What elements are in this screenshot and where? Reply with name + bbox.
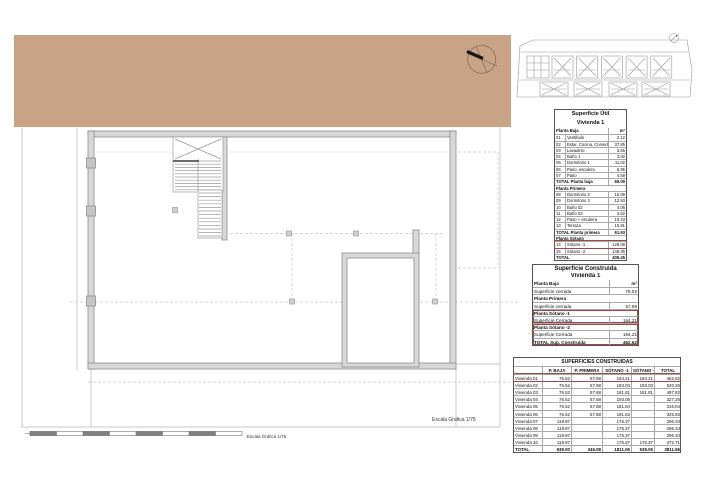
value-cell: 193.03 <box>602 382 631 388</box>
table-row: Planta Bajam² <box>555 128 626 134</box>
value-cell: 61.93 <box>608 230 626 235</box>
value-cell: 3.65 <box>608 148 626 153</box>
value-cell <box>571 425 602 431</box>
table-row: Vivienda 0276.5257.68193.03193.03520.26 <box>514 381 680 388</box>
value-cell: Vivienda 10 <box>514 439 542 445</box>
table-row: 03Lavadero3.65 <box>555 147 626 153</box>
value-cell: 191.63 <box>602 411 631 417</box>
construida-table-rows: Planta Bajam²Superficie cerrada76.52Plan… <box>533 280 638 345</box>
row-label-cell: Planta Primera <box>555 186 626 191</box>
room-code-cell: 14 <box>555 242 566 247</box>
table-row: TOTAL405.45 <box>555 254 626 260</box>
row-label-cell: Sótano -2 <box>566 249 608 254</box>
table-row: 01Vestíbulo2.12 <box>555 134 626 140</box>
value-cell: 327.26 <box>654 396 680 402</box>
construida-table-subtitle: Vivienda 1 <box>533 273 638 281</box>
table-row: 10Baño 024.06 <box>555 204 626 210</box>
row-label-cell: Paso, escalera <box>566 167 608 172</box>
value-cell: 119.97 <box>542 425 571 431</box>
column-header-cell: TOTAL <box>654 367 680 374</box>
column-header-cell: P. PRIMERA <box>571 367 602 374</box>
room-code-cell: 10 <box>555 205 566 210</box>
table-header-row: P. BAJAP. PRIMERASÓTANO -1SÓTANO -2TOTAL <box>514 367 680 374</box>
row-label-cell: Superficie Cerrada <box>533 317 609 323</box>
value-cell: 296.34 <box>654 425 680 431</box>
value-cell: 176.37 <box>602 439 631 445</box>
value-cell: 4.06 <box>608 205 626 210</box>
total-cell: TOTAL <box>514 446 542 452</box>
value-cell: 57.68 <box>571 411 602 417</box>
construida-table-title: Superficie Construida <box>533 265 638 273</box>
value-cell: 5.95 <box>608 167 626 172</box>
column-header-cell: P. BAJA <box>542 367 571 374</box>
value-cell <box>631 411 654 417</box>
row-label-cell: Planta Sótano -1 <box>533 310 638 316</box>
row-label-cell: Planta Sótano -2 <box>533 324 638 330</box>
superficie-construida-table: Superficie Construida Vivienda 1 Planta … <box>532 264 639 346</box>
value-cell: 4.58 <box>608 173 626 178</box>
row-label-cell: Planta Baja <box>533 280 609 287</box>
row-label-cell: Superficie cerrada <box>533 288 609 294</box>
room-code-cell: 03 <box>555 148 566 153</box>
value-cell: 146.35 <box>608 249 626 254</box>
value-cell: 76.52 <box>609 288 638 294</box>
value-cell: 497.82 <box>654 389 680 395</box>
value-cell: 164.21 <box>602 375 631 381</box>
column-header-cell <box>514 367 542 374</box>
column-header-cell: SÓTANO -2 <box>631 367 654 374</box>
table-row: Planta Sótano -2 <box>533 323 638 330</box>
table-row: Vivienda 0676.5257.68191.63325.83 <box>514 410 680 417</box>
value-cell: 181.81 <box>631 389 654 395</box>
row-label-cell: Patio <box>566 173 608 178</box>
value-cell: 119.97 <box>542 432 571 438</box>
value-cell: m² <box>608 128 626 134</box>
room-code-cell: 04 <box>555 154 566 159</box>
value-cell: 405.45 <box>608 255 626 260</box>
value-cell: 10.43 <box>608 217 626 222</box>
row-label-cell: Estar, Cocina, Comedor <box>566 142 608 147</box>
total-cell: 539.05 <box>631 446 654 452</box>
value-cell <box>631 403 654 409</box>
table-row: TOTAL Sup. Construida462.62 <box>533 338 638 345</box>
value-cell: 325.83 <box>654 411 680 417</box>
table-row: Planta Primera <box>533 294 638 301</box>
site-key-plan <box>517 34 692 98</box>
value-cell: 3.62 <box>608 211 626 216</box>
value-cell: 462.62 <box>609 339 638 345</box>
table-row: Vivienda 0476.5257.68193.06327.26 <box>514 395 680 402</box>
table-row: Vivienda 07119.97176.37296.34 <box>514 417 680 424</box>
value-cell: Vivienda 09 <box>514 432 542 438</box>
row-label-cell: TOTAL Sup. Construida <box>533 339 609 345</box>
value-cell: 119.97 <box>542 439 571 445</box>
column-header-cell: SÓTANO -1 <box>602 367 631 374</box>
value-cell: 11.02 <box>608 160 626 165</box>
value-cell: 57.68 <box>571 389 602 395</box>
value-cell <box>631 432 654 438</box>
room-code-cell: 06 <box>555 167 566 172</box>
row-label-cell: Terraza <box>566 223 608 228</box>
value-cell: 164.21 <box>631 375 654 381</box>
value-cell: 57.68 <box>571 403 602 409</box>
table-row: 08Dormitorio 215.08 <box>555 191 626 197</box>
value-cell: Vivienda 03 <box>514 389 542 395</box>
table-row: TOTAL Planta baja69.09 <box>555 178 626 184</box>
value-cell: Vivienda 01 <box>514 375 542 381</box>
table-row: Planta Primera <box>555 185 626 191</box>
table-row: Vivienda 10119.97176.37176.37472.71 <box>514 438 680 445</box>
value-cell: Vivienda 06 <box>514 411 542 417</box>
room-code-cell: 05 <box>555 160 566 165</box>
superficies-resumen-table: SUPERFICIES CONSTRUIDAS P. BAJAP. PRIMER… <box>513 357 681 453</box>
row-label-cell: Sótano -1 <box>566 242 608 247</box>
value-cell: 181.84 <box>602 403 631 409</box>
value-cell: 296.34 <box>654 418 680 424</box>
util-table-rows: Planta Bajam²01Vestíbulo2.1202Estar, Coc… <box>555 128 626 260</box>
value-cell: 76.52 <box>542 403 571 409</box>
value-cell: 57.68 <box>571 382 602 388</box>
value-cell: 520.26 <box>654 382 680 388</box>
table-row: Superficie Cerrada164.21 <box>533 330 638 337</box>
table-row: 13Terraza15.81 <box>555 222 626 228</box>
value-cell <box>571 439 602 445</box>
row-label-cell: Paso + escalera <box>566 217 608 222</box>
value-cell: 12.93 <box>608 198 626 203</box>
value-cell: 164.21 <box>609 331 638 337</box>
value-cell: m² <box>609 280 638 287</box>
mini-compass-icon <box>670 34 679 43</box>
table-row: Superficie cerrada57.68 <box>533 302 638 309</box>
row-label-cell: Dormitorio 2 <box>566 192 608 197</box>
value-cell: 2.12 <box>608 135 626 140</box>
room-code-cell: 12 <box>555 217 566 222</box>
table-row: 14Sótano -1128.06 <box>555 241 626 247</box>
value-cell: 15.81 <box>608 223 626 228</box>
superficie-util-table: Superficie Útil Vivienda 1 Planta Bajam²… <box>554 109 627 261</box>
value-cell <box>571 418 602 424</box>
table-row: Planta Bajam² <box>533 280 638 287</box>
row-label-cell: Planta Sótano <box>555 236 626 241</box>
total-cell: 1811.06 <box>602 446 631 452</box>
row-label-cell: Vestíbulo <box>566 135 608 140</box>
value-cell: 176.37 <box>602 432 631 438</box>
value-cell: 316.04 <box>654 403 680 409</box>
room-code-cell: 01 <box>555 135 566 140</box>
row-label-cell: TOTAL Planta primera <box>555 230 608 235</box>
table-row: Planta Sótano <box>555 235 626 241</box>
table-row: Vivienda 0576.5257.68181.84316.04 <box>514 402 680 409</box>
row-label-cell: Planta Baja <box>555 128 608 134</box>
value-cell: 37.85 <box>608 142 626 147</box>
room-code-cell: 15 <box>555 249 566 254</box>
table-total-row: TOTAL939.00346.081811.06539.053811.56 <box>514 445 680 452</box>
value-cell: 76.52 <box>542 389 571 395</box>
room-code-cell: 07 <box>555 173 566 178</box>
value-cell: 181.81 <box>602 389 631 395</box>
storage-room <box>342 253 419 367</box>
room-code-cell: 09 <box>555 198 566 203</box>
value-cell: 76.52 <box>542 375 571 381</box>
row-label-cell: TOTAL <box>555 255 608 260</box>
value-cell: 296.34 <box>654 432 680 438</box>
value-cell: 176.37 <box>602 418 631 424</box>
value-cell: 176.37 <box>602 425 631 431</box>
table-row: Vivienda 0176.5257.68164.21164.21462.62 <box>514 374 680 381</box>
table-row: Planta Sótano -1 <box>533 309 638 316</box>
room-code-cell: 02 <box>555 142 566 147</box>
row-label-cell: TOTAL Planta baja <box>555 179 608 184</box>
room-code-cell: 11 <box>555 211 566 216</box>
row-label-cell: Baño 03 <box>566 211 608 216</box>
total-cell: 939.00 <box>542 446 571 452</box>
scale-label-right: Escala Grafica 1/75 <box>432 417 476 423</box>
row-label-cell: Baño 02 <box>566 205 608 210</box>
value-cell <box>631 425 654 431</box>
value-cell: 119.97 <box>542 418 571 424</box>
value-cell: 462.62 <box>654 375 680 381</box>
value-cell: 15.08 <box>608 192 626 197</box>
value-cell: 472.71 <box>654 439 680 445</box>
resumen-table-rows: P. BAJAP. PRIMERASÓTANO -1SÓTANO -2TOTAL… <box>514 367 680 452</box>
value-cell: 76.52 <box>542 411 571 417</box>
row-label-cell: Superficie cerrada <box>533 303 609 309</box>
room-code-cell: 13 <box>555 223 566 228</box>
plan-sheet: Escala Grafica 1/75 Escala Grafica 1/75 … <box>0 0 705 498</box>
value-cell <box>631 418 654 424</box>
value-cell: Vivienda 07 <box>514 418 542 424</box>
graphic-scale-bar <box>25 432 242 436</box>
value-cell <box>571 432 602 438</box>
value-cell: 3.92 <box>608 154 626 159</box>
scale-label-bottom: Escala Grafica 1/75 <box>247 434 286 439</box>
util-table-title: Superficie Útil <box>555 110 626 119</box>
value-cell: 193.06 <box>602 396 631 402</box>
table-row: Superficie cerrada76.52 <box>533 287 638 294</box>
table-row: 07Patio4.58 <box>555 172 626 178</box>
staircase <box>173 137 223 238</box>
table-row: 11Baño 033.62 <box>555 210 626 216</box>
util-table-subtitle: Vivienda 1 <box>555 119 626 128</box>
terrain-fill <box>14 35 511 127</box>
value-cell: 128.06 <box>608 242 626 247</box>
value-cell: Vivienda 05 <box>514 403 542 409</box>
value-cell: 76.52 <box>542 396 571 402</box>
table-row: 09Dormitorio 312.93 <box>555 197 626 203</box>
value-cell: 76.52 <box>542 382 571 388</box>
value-cell: 57.68 <box>571 375 602 381</box>
value-cell: 164.21 <box>609 317 638 323</box>
table-row: 15Sótano -2146.35 <box>555 248 626 254</box>
value-cell: 57.68 <box>609 303 638 309</box>
total-cell: 346.08 <box>571 446 602 452</box>
table-row: 04Baño 13.92 <box>555 153 626 159</box>
row-label-cell: Baño 1 <box>566 154 608 159</box>
table-row: Superficie Cerrada164.21 <box>533 316 638 323</box>
row-label-cell: Dormitorio 1 <box>566 160 608 165</box>
table-row: TOTAL Planta primera61.93 <box>555 229 626 235</box>
table-row: 06Paso, escalera5.95 <box>555 166 626 172</box>
value-cell: 69.09 <box>608 179 626 184</box>
value-cell: Vivienda 02 <box>514 382 542 388</box>
row-label-cell: Lavadero <box>566 148 608 153</box>
row-label-cell: Planta Primera <box>533 295 638 301</box>
table-row: Vivienda 0376.5257.68181.81181.81497.82 <box>514 388 680 395</box>
total-cell: 3811.56 <box>654 446 680 452</box>
value-cell: 57.68 <box>571 396 602 402</box>
resumen-table-title: SUPERFICIES CONSTRUIDAS <box>514 358 680 367</box>
value-cell: Vivienda 08 <box>514 425 542 431</box>
table-row: 02Estar, Cocina, Comedor37.85 <box>555 141 626 147</box>
table-row: Vivienda 09119.97176.37296.34 <box>514 431 680 438</box>
value-cell: Vivienda 04 <box>514 396 542 402</box>
room-code-cell: 08 <box>555 192 566 197</box>
value-cell <box>631 396 654 402</box>
value-cell: 193.03 <box>631 382 654 388</box>
row-label-cell: Dormitorio 3 <box>566 198 608 203</box>
table-row: Vivienda 08119.97176.37296.34 <box>514 424 680 431</box>
table-row: 05Dormitorio 111.02 <box>555 159 626 165</box>
row-label-cell: Superficie Cerrada <box>533 331 609 337</box>
value-cell: 176.37 <box>631 439 654 445</box>
table-row: 12Paso + escalera10.43 <box>555 216 626 222</box>
